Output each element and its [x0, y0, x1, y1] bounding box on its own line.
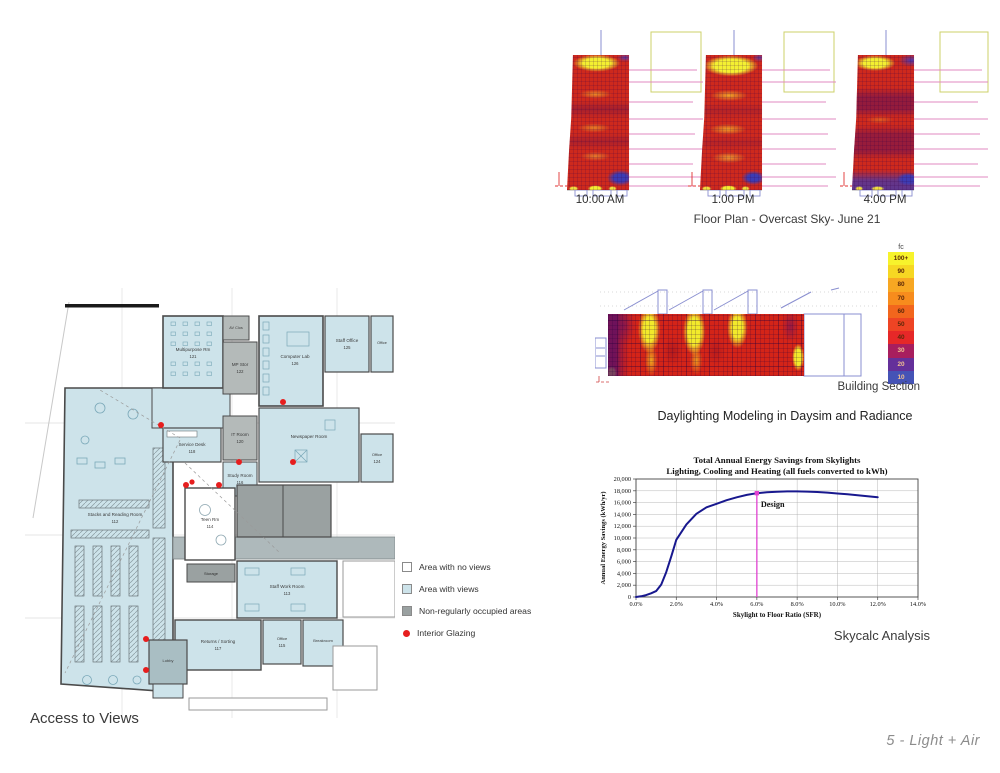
svg-text:115: 115 [279, 643, 286, 648]
access-views-caption: Access to Views [30, 710, 139, 727]
time-label: 1:00 PM [658, 194, 808, 206]
y-tick-label: 12,000 [614, 523, 631, 530]
daylighting-subtitle: Daylighting Modeling in Daysim and Radia… [640, 409, 930, 423]
fc-legend-swatch: 70 [888, 292, 914, 305]
y-tick-label: 18,000 [614, 488, 631, 495]
daylight-plan-1pm: 1:00 PM [688, 22, 838, 222]
x-tick-label: 6.0% [750, 601, 764, 608]
room-storage: Storage [187, 564, 235, 582]
room-office-top-right: Office [371, 316, 393, 372]
views-legend-label: Interior Glazing [417, 628, 475, 638]
svg-text:121: 121 [190, 354, 198, 359]
daylight-plan-4pm: 4:00 PM [840, 22, 990, 222]
x-tick-label: 10.0% [829, 601, 846, 608]
views-legend-item: Area with views [402, 578, 562, 600]
skycalc-caption: Skycalc Analysis [770, 628, 930, 643]
views-legend-label: Area with no views [419, 562, 491, 572]
fc-legend-swatch: 90 [888, 265, 914, 278]
y-tick-label: 0 [628, 594, 631, 601]
room-office-bottom: Office 115 [263, 620, 301, 664]
room-lobby: Lobby [149, 640, 187, 698]
y-tick-label: 8,000 [617, 547, 631, 554]
y-tick-label: 6,000 [617, 559, 631, 566]
x-tick-label: 14.0% [910, 601, 927, 608]
y-tick-label: 20,000 [614, 476, 631, 483]
svg-text:Breakroom: Breakroom [313, 638, 333, 643]
daylight-heatmap-4pm [850, 55, 916, 190]
svg-text:Teen Rm: Teen Rm [201, 517, 220, 522]
y-tick-label: 2,000 [617, 582, 631, 589]
svg-text:116: 116 [237, 480, 244, 485]
room-newspaper: Newspaper Room [259, 408, 359, 482]
svg-text:124: 124 [374, 459, 382, 464]
y-tick-label: 16,000 [614, 500, 631, 507]
fc-legend-swatch: 20 [888, 358, 914, 371]
svg-text:114: 114 [207, 524, 214, 529]
svg-text:Staff Work Room: Staff Work Room [270, 584, 305, 589]
corridor-band [231, 537, 395, 559]
open-floor [152, 388, 230, 428]
room-mp-storage: MP Stor 122 [223, 342, 257, 394]
x-tick-label: 4.0% [710, 601, 724, 608]
views-legend-item: Non-regularly occupied areas [402, 600, 562, 622]
views-legend-label: Non-regularly occupied areas [419, 606, 531, 616]
room-office-mid-right: Office 124 [361, 434, 393, 482]
fc-legend: fc 100+908070605040302010 [886, 244, 916, 384]
legend-dot-swatch [403, 630, 410, 637]
svg-text:Office: Office [377, 341, 387, 345]
room-staff-office: Staff Office 125 [325, 316, 369, 372]
views-legend-item: Interior Glazing [402, 622, 562, 644]
svg-text:Storage: Storage [204, 571, 219, 576]
svg-text:Returns / Sorting: Returns / Sorting [201, 639, 236, 644]
chart-title: Total Annual Energy Savings from Skyligh… [694, 455, 862, 465]
svg-text:Computer Lab: Computer Lab [280, 354, 310, 359]
scale-bar [65, 304, 159, 308]
time-label: 10:00 AM [525, 194, 675, 206]
y-tick-label: 14,000 [614, 511, 631, 518]
presentation-board: 10:00 AM 1:00 PM [0, 0, 1000, 773]
daylight-plan-10am: 10:00 AM [555, 22, 705, 222]
legend-square-swatch [402, 606, 412, 616]
svg-text:Multipurpose Rm: Multipurpose Rm [176, 347, 211, 352]
room-av-closet: AV Clos [223, 316, 249, 340]
svg-text:Lobby: Lobby [163, 658, 174, 663]
fc-legend-swatch: 100+ [888, 252, 914, 265]
restrooms [237, 485, 331, 537]
skycalc-chart: Total Annual Energy Savings from Skyligh… [596, 453, 931, 623]
svg-text:118: 118 [189, 449, 196, 454]
room-returns-sorting: Returns / Sorting 117 [175, 620, 261, 670]
time-label: 4:00 PM [810, 194, 960, 206]
y-tick-label: 10,000 [614, 535, 631, 542]
access-to-views-floorplan: Stacks and Reading Room 112 Multipurpose… [25, 288, 395, 718]
daylight-plans-caption: Floor Plan - Overcast Sky- June 21 [637, 212, 937, 226]
svg-text:Study Room: Study Room [227, 473, 252, 478]
daylight-heatmap-10am [565, 55, 631, 190]
corridor-stub [173, 537, 185, 559]
views-legend: Area with no viewsArea with viewsNon-reg… [402, 556, 562, 644]
fc-legend-swatch: 80 [888, 278, 914, 291]
design-marker [755, 491, 759, 495]
legend-square-swatch [402, 562, 412, 572]
svg-text:Staff Office: Staff Office [336, 338, 359, 343]
svg-text:MP Stor: MP Stor [232, 362, 249, 367]
room-computer-lab: Computer Lab 126 [259, 316, 323, 406]
legend-square-swatch [402, 584, 412, 594]
svg-text:113: 113 [284, 591, 291, 596]
chart-xlabel: Skylight to Floor Ratio (SFR) [733, 611, 822, 619]
room-teen: Teen Rm 114 [185, 488, 235, 560]
room-multipurpose: Multipurpose Rm 121 [163, 316, 223, 388]
views-legend-label: Area with views [419, 584, 479, 594]
svg-text:Stacks and Reading Room: Stacks and Reading Room [88, 512, 143, 517]
design-annotation-label: Design [761, 500, 785, 509]
x-tick-label: 8.0% [791, 601, 805, 608]
svg-text:112: 112 [112, 519, 119, 524]
page-footer: 5 - Light + Air [850, 733, 980, 749]
building-section-caption: Building Section [720, 381, 920, 393]
svg-text:Service Desk: Service Desk [178, 442, 206, 447]
x-tick-label: 12.0% [870, 601, 887, 608]
x-tick-label: 0.0% [629, 601, 643, 608]
fc-legend-swatch: 60 [888, 305, 914, 318]
svg-text:126: 126 [292, 361, 300, 366]
svg-text:117: 117 [215, 646, 222, 651]
x-tick-label: 2.0% [670, 601, 684, 608]
svg-text:Office: Office [372, 452, 383, 457]
svg-text:122: 122 [237, 369, 245, 374]
room-staff-work: Staff Work Room 113 [237, 561, 337, 618]
svg-text:Newspaper Room: Newspaper Room [291, 434, 328, 439]
fc-legend-swatch: 50 [888, 318, 914, 331]
chart-subtitle: Lighting, Cooling and Heating (all fuels… [666, 466, 887, 476]
room-it: IT Room 120 [223, 416, 257, 460]
svg-text:Office: Office [277, 636, 288, 641]
svg-text:IT Room: IT Room [231, 432, 249, 437]
chart-ylabel: Annual Energy Savings (kWh/yr) [600, 491, 607, 584]
y-tick-label: 4,000 [617, 570, 631, 577]
svg-text:125: 125 [344, 345, 352, 350]
svg-text:120: 120 [237, 439, 245, 444]
daylight-heatmap-1pm [698, 55, 764, 190]
views-legend-item: Area with no views [402, 556, 562, 578]
svg-text:AV Clos: AV Clos [229, 326, 243, 330]
building-section-heatmap [608, 314, 804, 376]
fc-legend-swatch: 40 [888, 331, 914, 344]
fc-legend-swatches: 100+908070605040302010 [886, 252, 916, 384]
fc-legend-swatch: 30 [888, 344, 914, 357]
fc-legend-title: fc [886, 244, 916, 251]
